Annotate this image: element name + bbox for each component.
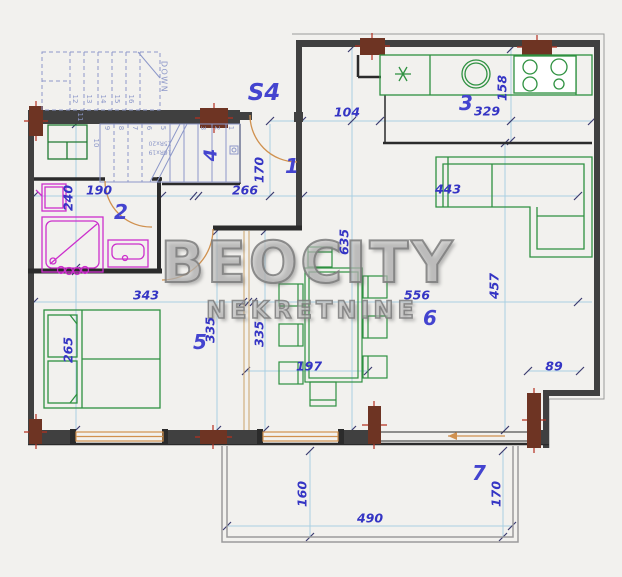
stair-step-number: 16 <box>127 95 135 104</box>
stair-step-number: 1 <box>227 126 235 130</box>
dim-190: 190 <box>86 183 112 198</box>
dim-343: 343 <box>133 288 159 303</box>
stair-step-number: 9 <box>103 126 111 130</box>
room-label-1: 1 <box>285 154 299 178</box>
dim-89: 89 <box>545 359 562 374</box>
stair-step-number: 15 <box>113 95 121 104</box>
dim-635: 635 <box>337 229 352 255</box>
stair-step-number: 2 <box>213 126 221 130</box>
stair-step-number: 5 <box>159 126 167 130</box>
kitchen-counter <box>380 55 592 95</box>
stair-step-number: 14 <box>99 95 107 104</box>
sanitary-fixtures <box>36 184 148 275</box>
dim-160: 160 <box>295 481 310 507</box>
room-label-3: 3 <box>459 91 473 115</box>
room-label-s4: S4 <box>248 80 281 106</box>
floorplan: BEOCITY NEKRETNINE S4 1 2 3 4 5 6 7 104 … <box>0 0 622 577</box>
dim-265: 265 <box>61 337 76 363</box>
closet <box>48 125 87 159</box>
dim-240: 240 <box>61 185 76 211</box>
room-label-4: 4 <box>201 149 222 162</box>
stair-step-number: 6 <box>145 126 153 130</box>
stairs-spec-lower: 16Rx19 <box>149 149 172 156</box>
stair-step-number: 12 <box>71 95 79 104</box>
dim-335-right: 335 <box>252 321 267 347</box>
dim-457: 457 <box>487 273 502 299</box>
dim-104: 104 <box>334 105 360 120</box>
dim-170-terrace: 170 <box>489 481 504 507</box>
stair-step-number: 10 <box>92 139 100 148</box>
dim-490: 490 <box>357 511 383 526</box>
stairs-down-label: DOWN <box>160 61 169 93</box>
room-label-6: 6 <box>423 306 437 330</box>
dim-329: 329 <box>474 104 500 119</box>
dim-170-entry: 170 <box>252 157 267 183</box>
room-label-7: 7 <box>472 461 486 485</box>
dim-335-left: 335 <box>203 317 218 343</box>
stairs-spec-upper: 15Rx20 <box>149 140 172 147</box>
stair-step-number: 13 <box>85 95 93 104</box>
stair-step-number: 11 <box>76 113 84 122</box>
room-label-2: 2 <box>114 200 128 224</box>
dim-556: 556 <box>404 288 430 303</box>
dim-158: 158 <box>495 75 510 101</box>
dim-197: 197 <box>296 359 322 374</box>
sofa <box>436 157 592 257</box>
watermark-line1: BEOCITY <box>160 230 455 296</box>
stair-step-number: 8 <box>117 126 125 130</box>
dim-266: 266 <box>232 183 258 198</box>
stair-step-number: 3 <box>199 126 207 130</box>
watermark-line2: NEKRETNINE <box>206 296 418 324</box>
stair-step-number: 7 <box>131 126 139 130</box>
dim-443: 443 <box>435 182 461 197</box>
